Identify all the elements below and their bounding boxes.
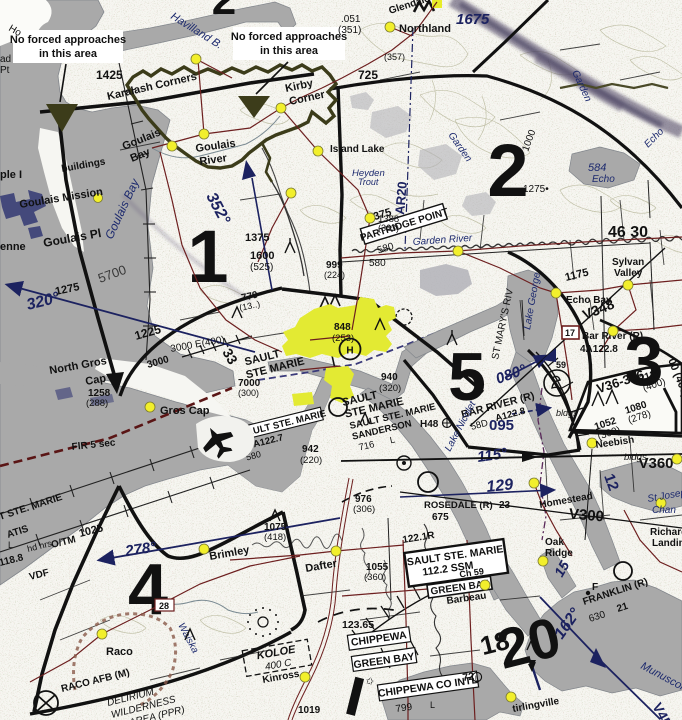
svg-text:Sylvan: Sylvan [612, 257, 644, 268]
svg-text:.051: .051 [341, 14, 361, 25]
svg-text:725: 725 [358, 68, 378, 82]
svg-text:1275•: 1275• [523, 184, 549, 195]
svg-text:1425: 1425 [96, 68, 123, 82]
svg-text:1600: 1600 [250, 250, 274, 262]
svg-text:ple I: ple I [0, 169, 22, 181]
svg-text:(418): (418) [264, 532, 286, 543]
svg-text:Chan: Chan [652, 505, 676, 516]
svg-text:129: 129 [486, 476, 514, 496]
svg-text:in this area: in this area [39, 48, 98, 60]
svg-text:Echo: Echo [592, 174, 615, 185]
svg-text:46 30: 46 30 [608, 224, 648, 241]
svg-text:Raco: Raco [106, 646, 133, 658]
svg-text:1675: 1675 [456, 11, 490, 28]
svg-text:Ridge: Ridge [545, 548, 573, 559]
svg-text:Trout: Trout [358, 177, 379, 187]
svg-text:675: 675 [432, 512, 449, 523]
svg-text:72: 72 [462, 670, 475, 684]
svg-text:H: H [346, 346, 353, 357]
svg-text:L: L [8, 540, 13, 550]
svg-text:584: 584 [588, 162, 606, 174]
svg-text:ROSEDALE (R): ROSEDALE (R) [424, 500, 493, 511]
svg-text:(320): (320) [379, 383, 401, 394]
svg-text:enne: enne [0, 241, 26, 253]
svg-text:Echo Bay: Echo Bay [566, 295, 612, 306]
svg-text:Pt: Pt [0, 65, 10, 76]
svg-text:1019: 1019 [298, 705, 321, 716]
svg-text:28: 28 [159, 601, 169, 611]
svg-text:ad: ad [0, 54, 11, 65]
svg-text:(288): (288) [86, 398, 108, 409]
svg-text:123.65: 123.65 [342, 619, 374, 631]
svg-text:23: 23 [499, 500, 511, 511]
svg-text:1: 1 [187, 215, 228, 298]
svg-text:F: F [592, 582, 598, 593]
svg-text:580: 580 [369, 258, 386, 269]
svg-text:(224): (224) [324, 270, 345, 280]
svg-text:848: 848 [334, 322, 351, 333]
svg-text:(357): (357) [384, 52, 405, 62]
svg-text:Oak: Oak [545, 537, 564, 548]
svg-text:(220): (220) [300, 455, 322, 466]
svg-text:bldgs: bldgs [624, 452, 647, 463]
svg-text:17: 17 [565, 328, 575, 338]
svg-text:Richard: Richard [650, 527, 682, 538]
svg-text:2: 2 [212, 0, 236, 24]
svg-text:(300): (300) [238, 388, 259, 398]
svg-text:(253): (253) [332, 333, 354, 344]
svg-text:H48: H48 [420, 419, 439, 430]
svg-text:Landing: Landing [652, 538, 682, 549]
svg-text:1375: 1375 [245, 232, 269, 244]
svg-text:L: L [430, 700, 435, 710]
svg-text:bldgs: bldgs [556, 408, 578, 418]
svg-text:in this area: in this area [260, 45, 319, 57]
svg-text:Island Lake: Island Lake [330, 144, 385, 155]
svg-text:940: 940 [381, 372, 398, 383]
svg-text:No forced approaches: No forced approaches [10, 34, 126, 46]
svg-text:Valley: Valley [614, 268, 643, 279]
svg-text:No forced approaches: No forced approaches [231, 31, 347, 43]
svg-text:(525): (525) [250, 262, 273, 273]
svg-text:(360): (360) [364, 572, 386, 583]
svg-text:(306): (306) [353, 504, 375, 515]
svg-text:Gros Cap: Gros Cap [160, 405, 210, 417]
svg-text:(351): (351) [338, 25, 361, 36]
svg-text:(363): (363) [378, 223, 399, 233]
svg-text:4A122.8: 4A122.8 [580, 344, 618, 355]
svg-text:L: L [475, 674, 479, 683]
svg-text:AR20: AR20 [392, 181, 410, 215]
svg-text:942: 942 [302, 444, 319, 455]
svg-text:59: 59 [556, 360, 566, 370]
svg-text:Northland: Northland [399, 23, 451, 35]
